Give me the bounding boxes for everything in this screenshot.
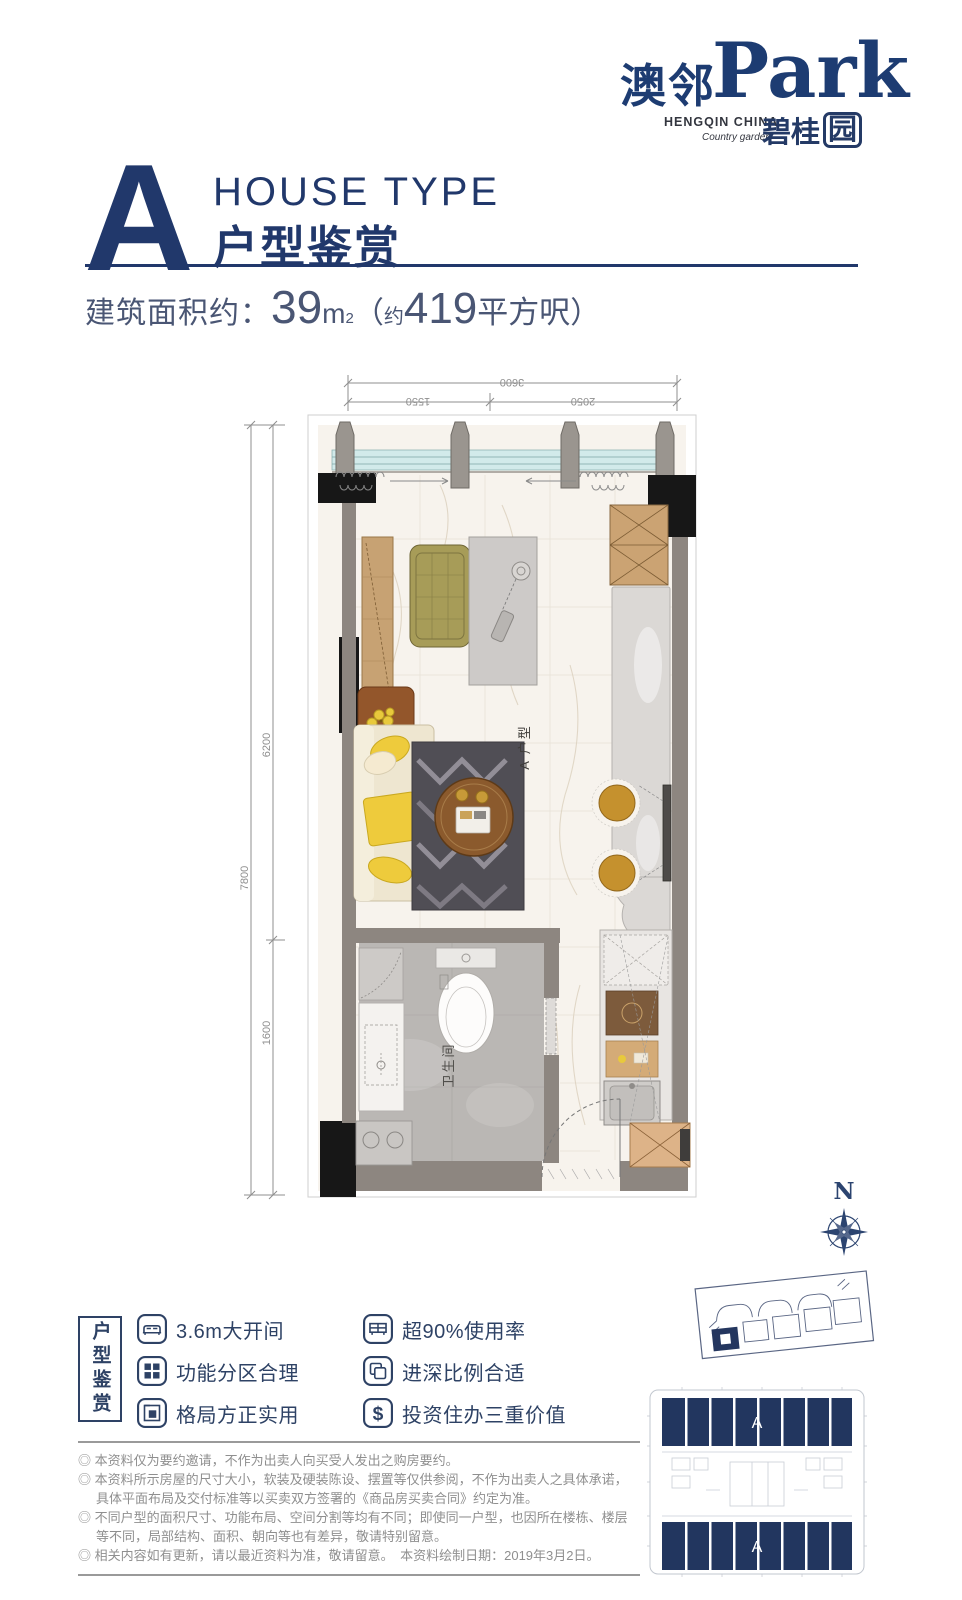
plate-unit-a-bottom: A	[752, 1539, 763, 1556]
floor-plate-diagram: A A	[642, 1386, 872, 1582]
feature-item-depth: 进深比例合适	[363, 1356, 566, 1386]
area-paren-close: ）	[570, 288, 600, 332]
features-section-title-box: 户型鉴赏	[78, 1316, 122, 1422]
dim-top-right: 2050	[571, 395, 595, 407]
wood-sideboard	[362, 537, 393, 705]
logo-subtitle-script: Country garden	[702, 132, 771, 143]
kitchen-counter	[600, 930, 672, 1125]
page-title-en: HOUSE TYPE	[213, 170, 500, 215]
compass-north-label: N	[812, 1178, 876, 1205]
floor-plan: 3600 1550 2050 7800 6200 1600	[240, 365, 880, 1205]
dim-left-total: 7800	[240, 866, 251, 890]
area-line: 建筑面积约： 39 m 2 （ 约 419 平方呎 ）	[85, 280, 600, 334]
area-paren-open: （	[354, 288, 384, 332]
window-glass-band	[332, 450, 674, 470]
logo-country-garden: 碧桂园	[762, 109, 862, 151]
title-divider	[85, 264, 858, 267]
disclaimer-line: ◎ 相关内容如有更新，请以最近资料为准，敬请留意。 本资料绘制日期：2019年3…	[78, 1546, 640, 1565]
dollar-icon: $	[363, 1398, 393, 1428]
dim-left-bottom: 1600	[261, 1021, 273, 1045]
feature-label: 格局方正实用	[176, 1399, 299, 1428]
site-key-plan	[680, 1258, 885, 1366]
disclaimer-line: ◎ 本资料仅为要约邀请，不作为出卖人向买受人发出之购房要约。	[78, 1451, 640, 1470]
tv-panel	[663, 785, 671, 881]
area-approx: 约	[384, 300, 404, 329]
work-desk	[469, 537, 537, 685]
feature-label: 功能分区合理	[176, 1357, 299, 1386]
svg-text:$: $	[373, 1404, 384, 1425]
bathroom-label: 卫生间	[441, 1042, 456, 1087]
feature-item-span: 3.6m大开间	[137, 1314, 299, 1344]
compass-rose-icon	[817, 1205, 871, 1259]
usage-icon	[363, 1314, 393, 1344]
bar-stool-top	[599, 785, 635, 821]
compass: N	[812, 1178, 876, 1264]
feature-label: 超90%使用率	[402, 1315, 526, 1344]
dim-top-total: 3600	[500, 376, 524, 388]
brochure-page: 澳邻 Park HENGQIN CHINA Country garden 碧桂园…	[0, 0, 962, 1600]
features-column-1: 3.6m大开间 功能分区合理 格局方正实用	[137, 1314, 299, 1428]
unit-label: A 户型	[517, 724, 532, 770]
feature-label: 投资住办三重价值	[402, 1399, 566, 1428]
plate-units-top: A	[662, 1398, 852, 1446]
area-label: 建筑面积约：	[85, 288, 271, 332]
feature-item-value: $ 投资住办三重价值	[363, 1398, 566, 1428]
disclaimer-line: ◎ 本资料所示房屋的尺寸大小，软装及硬装陈设、摆置等仅供参阅，不作为出卖人之具体…	[78, 1470, 640, 1508]
feature-item-layout: 格局方正实用	[137, 1398, 299, 1428]
depth-icon	[363, 1356, 393, 1386]
house-type-letter: A	[84, 142, 194, 294]
logo-country-garden-boxed: 园	[823, 112, 862, 148]
area-unit-sup: 2	[346, 310, 354, 327]
features-section-title: 户型鉴赏	[87, 1321, 114, 1417]
logo-country-garden-prefix: 碧桂	[762, 109, 820, 151]
dim-top-left: 1550	[406, 395, 430, 407]
entry-cabinet-crossed	[630, 1123, 690, 1167]
disclaimer: ◎ 本资料仅为要约邀请，不作为出卖人向买受人发出之购房要约。 ◎ 本资料所示房屋…	[78, 1441, 640, 1576]
layout-icon	[137, 1398, 167, 1428]
area-unit-sqft: 平方呎	[477, 287, 570, 332]
area-value-sqm: 39	[271, 280, 322, 334]
plate-units-bottom: A	[662, 1522, 852, 1570]
logo-park-wordmark: Park	[712, 26, 909, 115]
bar-stool-bottom	[599, 855, 635, 891]
feature-label: 进深比例合适	[402, 1357, 525, 1386]
plate-unit-a-top: A	[752, 1415, 763, 1432]
feature-item-usage: 超90%使用率	[363, 1314, 566, 1344]
coffee-table	[435, 778, 513, 856]
grid-icon	[137, 1356, 167, 1386]
features-column-2: 超90%使用率 进深比例合适 $ 投资住办三重价值	[363, 1314, 566, 1428]
area-value-sqft: 419	[404, 284, 477, 334]
desk-chair	[410, 545, 470, 647]
wardrobe-crossed	[610, 505, 668, 585]
bed-icon	[137, 1314, 167, 1344]
disclaimer-line: ◎ 不同户型的面积尺寸、功能布局、空间分割等均有不同；即使同一户型，也因所在楼栋…	[78, 1508, 640, 1546]
logo-cn: 澳邻	[620, 50, 716, 116]
feature-item-zoning: 功能分区合理	[137, 1356, 299, 1386]
bathroom	[356, 943, 556, 1165]
area-unit: m	[322, 298, 345, 330]
dim-left-top: 6200	[261, 733, 273, 757]
feature-label: 3.6m大开间	[176, 1315, 284, 1344]
